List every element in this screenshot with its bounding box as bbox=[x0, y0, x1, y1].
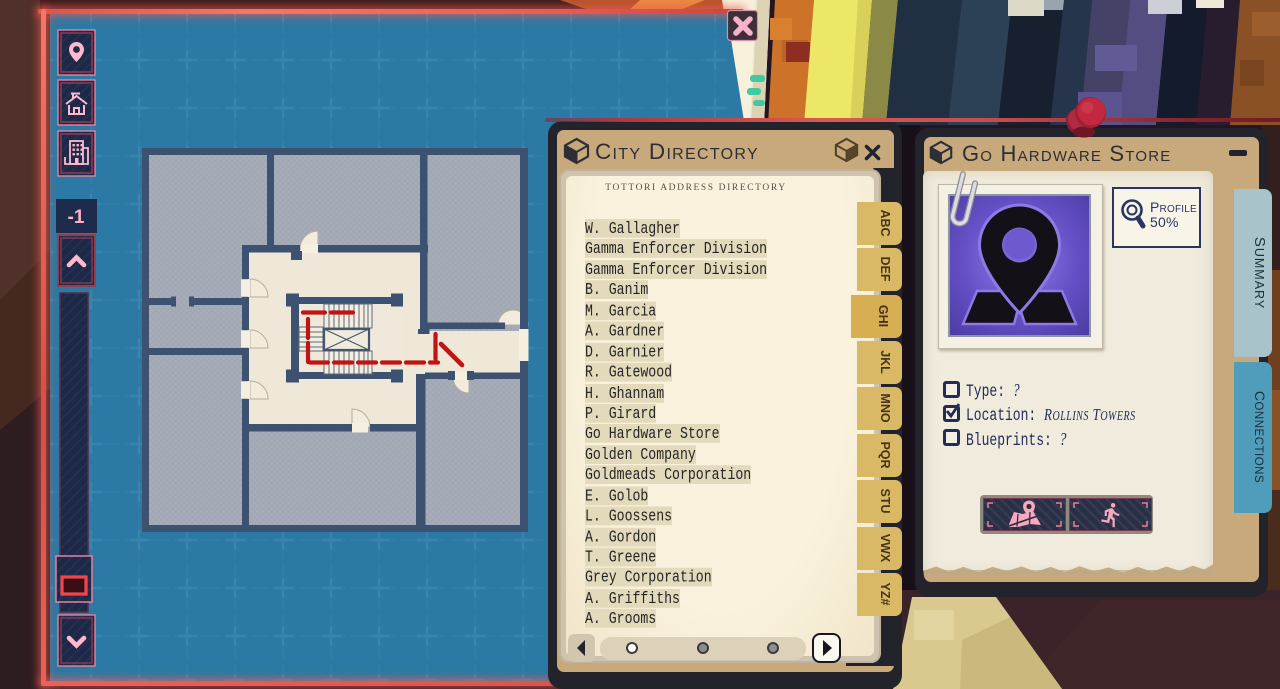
svg-text:JKL: JKL bbox=[878, 350, 892, 374]
svg-text:GHI: GHI bbox=[876, 305, 890, 327]
svg-text:STU: STU bbox=[878, 489, 892, 514]
svg-text:-1: -1 bbox=[68, 207, 85, 228]
svg-text:DEF: DEF bbox=[878, 257, 892, 282]
svg-text:VWX: VWX bbox=[878, 534, 892, 563]
svg-text:CONNECTIONS: CONNECTIONS bbox=[1252, 391, 1268, 483]
svg-text:ABC: ABC bbox=[878, 209, 892, 236]
svg-text:MNO: MNO bbox=[878, 393, 892, 422]
svg-text:SUMMARY: SUMMARY bbox=[1251, 237, 1268, 309]
svg-text:YZ#: YZ# bbox=[878, 583, 892, 606]
svg-text:PQR: PQR bbox=[878, 441, 892, 468]
